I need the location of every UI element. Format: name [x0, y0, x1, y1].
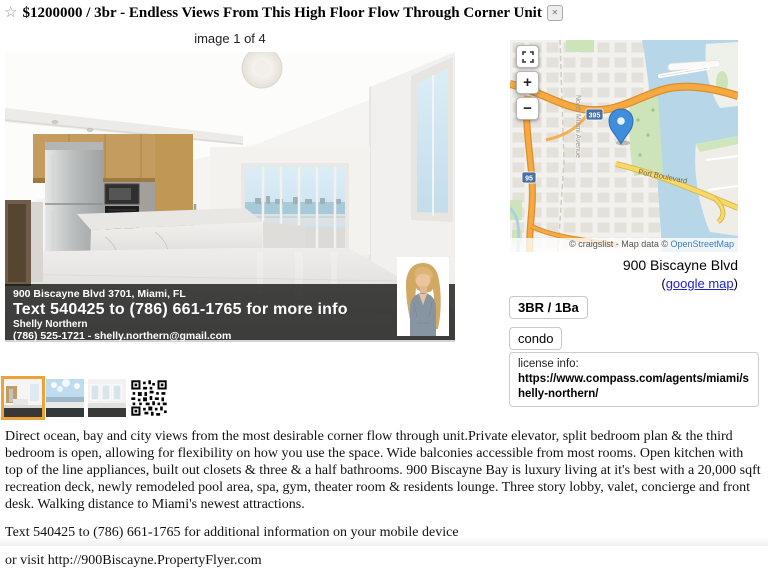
posting-title: $1200000 / 3br - Endless Views From This…: [22, 3, 541, 23]
fullscreen-icon: [522, 51, 534, 63]
qr-code-thumbnail[interactable]: [130, 379, 168, 417]
paren-close: ): [734, 276, 738, 291]
license-info-label: license info:: [518, 357, 750, 372]
map[interactable]: North Miami Avenue Port Boulevard 395 95…: [510, 40, 738, 252]
banish-x-glyph: ✕: [551, 9, 558, 17]
posting-title-bar: ☆ $1200000 / 3br - Endless Views From Th…: [4, 3, 563, 23]
svg-text:95: 95: [525, 176, 533, 183]
visit-url-line: or visit http://900Biscayne.PropertyFlye…: [5, 552, 762, 569]
favorite-star-icon[interactable]: ☆: [4, 4, 17, 22]
map-fullscreen-button[interactable]: [516, 45, 539, 68]
overlay-cta: Text 540425 to (786) 661-1765 for more i…: [13, 300, 455, 319]
housing-type-badge: condo: [509, 327, 562, 350]
map-attribution: © craigslist - Map data © OpenStreetMap: [510, 238, 738, 252]
page-bottom-fade: [0, 537, 768, 546]
photo-overlay-banner: 900 Biscayne Blvd 3701, Miami, FL Text 5…: [5, 284, 455, 340]
street-label-north-miami-avenue: North Miami Avenue: [574, 95, 581, 158]
google-map-link[interactable]: google map: [666, 276, 734, 291]
thumbnail-strip: [4, 379, 168, 417]
thumbnail-2[interactable]: [46, 379, 84, 417]
map-canvas: North Miami Avenue Port Boulevard 395 95: [510, 40, 738, 252]
overlay-agent-name: Shelly Northern: [13, 319, 455, 330]
map-address: 900 Biscayne Blvd: [509, 257, 744, 273]
banish-icon[interactable]: ✕: [547, 5, 563, 21]
overlay-agent-contact: (786) 525-1721 - shelly.northern@gmail.c…: [13, 330, 455, 342]
openstreetmap-link[interactable]: OpenStreetMap: [670, 239, 734, 249]
main-photo[interactable]: 900 Biscayne Blvd 3701, Miami, FL Text 5…: [5, 52, 455, 342]
license-info-url: https://www.compass.com/agents/miami/she…: [518, 372, 750, 402]
map-zoom-in-button[interactable]: +: [516, 71, 539, 94]
image-counter: image 1 of 4: [5, 31, 455, 46]
overlay-address: 900 Biscayne Blvd 3701, Miami, FL: [13, 288, 455, 300]
interstate-395-shield: 395: [586, 109, 603, 120]
attribution-text: © craigslist - Map data ©: [569, 239, 670, 249]
google-map-line: (google map): [509, 276, 744, 291]
bed-bath-badge: 3BR / 1Ba: [509, 296, 588, 319]
agent-headshot: [397, 257, 449, 336]
thumbnail-1[interactable]: [4, 379, 42, 417]
license-info-box: license info: https://www.compass.com/ag…: [509, 352, 759, 407]
thumbnail-3[interactable]: [88, 379, 126, 417]
svg-text:395: 395: [589, 113, 601, 120]
map-zoom-out-button[interactable]: −: [516, 97, 539, 120]
posting-body: Direct ocean, bay and city views from th…: [5, 428, 762, 580]
posting-description: Direct ocean, bay and city views from th…: [5, 428, 762, 513]
interstate-95-shield: 95: [522, 172, 536, 183]
